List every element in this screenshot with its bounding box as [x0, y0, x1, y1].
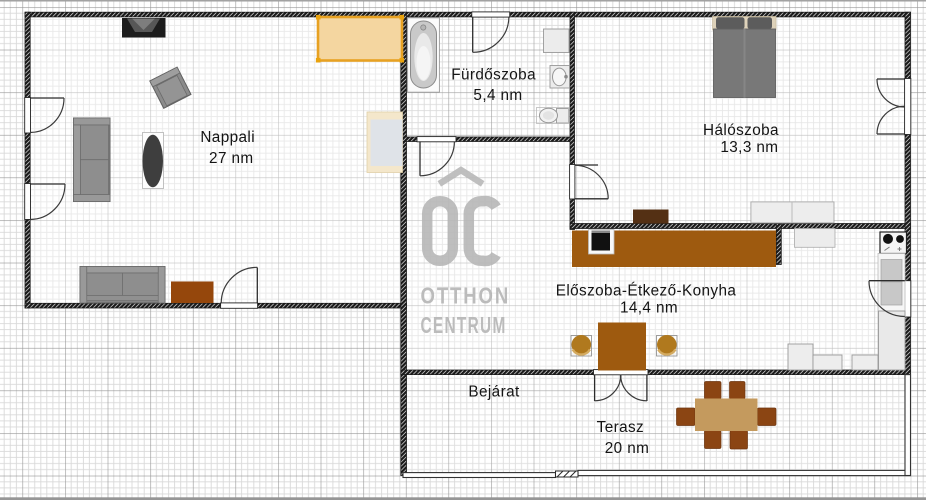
svg-text:13,3 nm: 13,3 nm [720, 139, 778, 156]
svg-text:5,4 nm: 5,4 nm [473, 87, 522, 104]
svg-text:Nappali: Nappali [200, 129, 255, 146]
svg-text:27 nm: 27 nm [209, 150, 254, 167]
svg-text:Bejárat: Bejárat [468, 383, 520, 400]
svg-text:14,4 nm: 14,4 nm [620, 300, 678, 317]
svg-text:20 nm: 20 nm [605, 440, 650, 457]
svg-text:CENTRUM: CENTRUM [421, 313, 507, 339]
svg-text:Fürdőszoba: Fürdőszoba [451, 66, 536, 83]
svg-text:OTTHON: OTTHON [421, 284, 511, 310]
svg-text:Terasz: Terasz [597, 419, 644, 436]
svg-text:Hálószoba: Hálószoba [703, 122, 779, 139]
svg-text:Előszoba-Étkező-Konyha: Előszoba-Étkező-Konyha [556, 282, 737, 299]
